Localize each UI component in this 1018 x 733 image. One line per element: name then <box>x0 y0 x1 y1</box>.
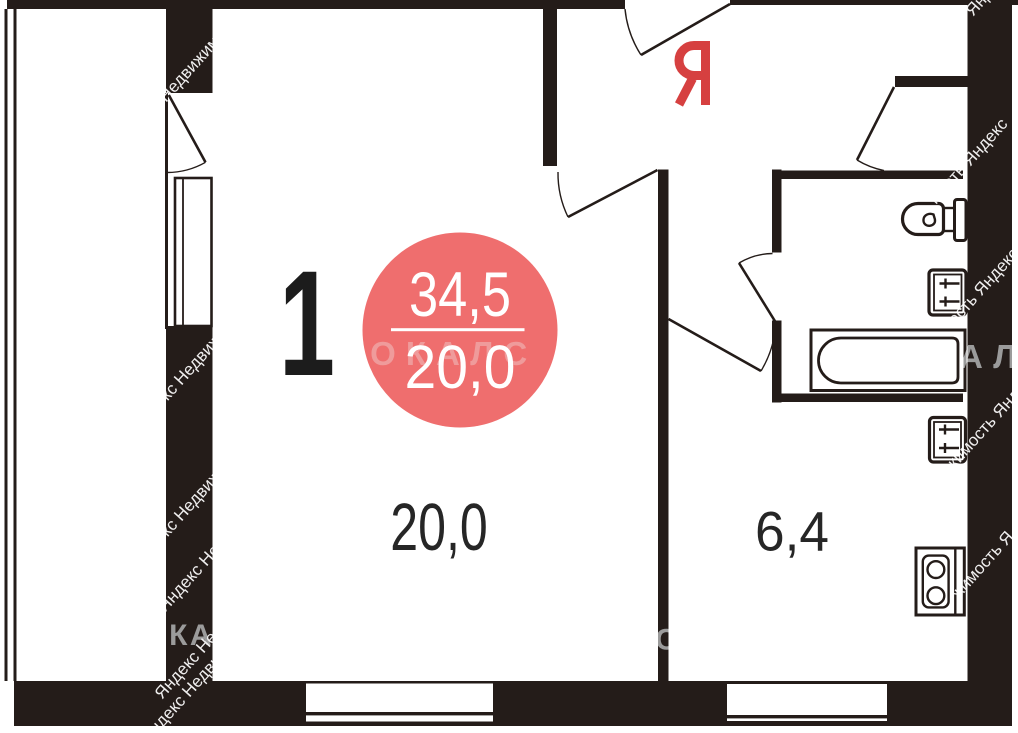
svg-text:6,4: 6,4 <box>755 501 829 563</box>
svg-text:ЛОКАЛС: ЛОКАЛС <box>337 335 537 372</box>
svg-text:ЛОКАЛС: ЛОКАЛС <box>860 338 1018 375</box>
svg-text:20,0: 20,0 <box>390 490 488 565</box>
svg-text:1: 1 <box>279 239 335 407</box>
svg-text:34,5: 34,5 <box>409 260 511 330</box>
svg-text:ЛОКАЛС: ЛОКАЛС <box>537 624 679 657</box>
